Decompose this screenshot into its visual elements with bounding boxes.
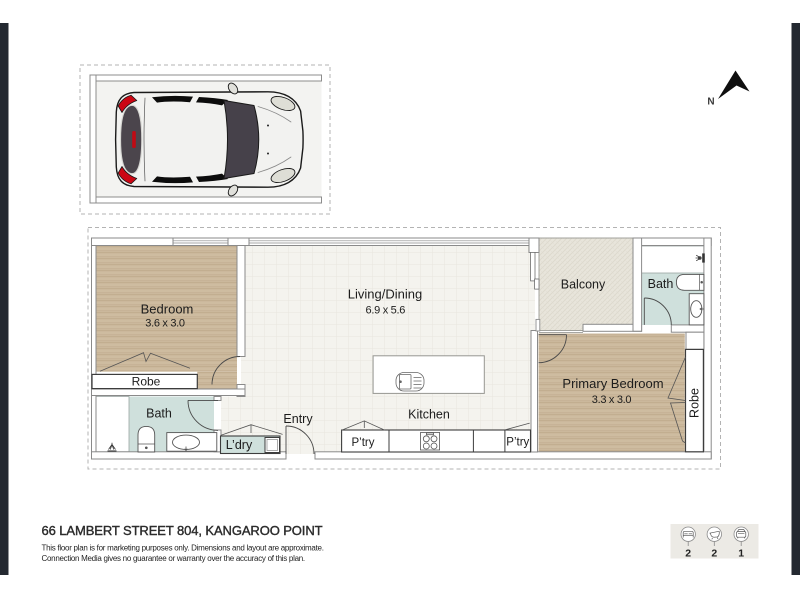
svg-text:Bath: Bath <box>146 407 172 421</box>
svg-text:Living/Dining: Living/Dining <box>348 287 422 302</box>
svg-text:Robe: Robe <box>688 388 702 418</box>
svg-text:Kitchen: Kitchen <box>408 408 450 422</box>
svg-text:Connection Media gives no guar: Connection Media gives no guarantee or w… <box>42 554 305 563</box>
svg-text:L’dry: L’dry <box>226 438 253 452</box>
svg-text:This floor plan is for marketi: This floor plan is for marketing purpose… <box>42 543 324 552</box>
svg-text:P’try: P’try <box>352 437 375 449</box>
svg-text:2: 2 <box>685 548 691 560</box>
svg-text:66 LAMBERT STREET 804, KANGARO: 66 LAMBERT STREET 804, KANGAROO POINT <box>42 523 323 538</box>
svg-text:3.6 x 3.0: 3.6 x 3.0 <box>145 318 185 330</box>
svg-text:Bath: Bath <box>648 277 674 291</box>
svg-text:Bedroom: Bedroom <box>141 302 194 317</box>
svg-text:3.3 x 3.0: 3.3 x 3.0 <box>592 394 632 406</box>
svg-text:P’try: P’try <box>506 436 529 448</box>
svg-text:Balcony: Balcony <box>561 278 606 292</box>
svg-text:Entry: Entry <box>283 412 313 426</box>
svg-text:Robe: Robe <box>132 374 161 388</box>
svg-text:N: N <box>707 97 714 108</box>
svg-text:2: 2 <box>711 548 717 560</box>
svg-text:1: 1 <box>738 548 744 560</box>
svg-text:Primary Bedroom: Primary Bedroom <box>562 376 663 391</box>
svg-text:6.9 x 5.6: 6.9 x 5.6 <box>366 305 406 317</box>
